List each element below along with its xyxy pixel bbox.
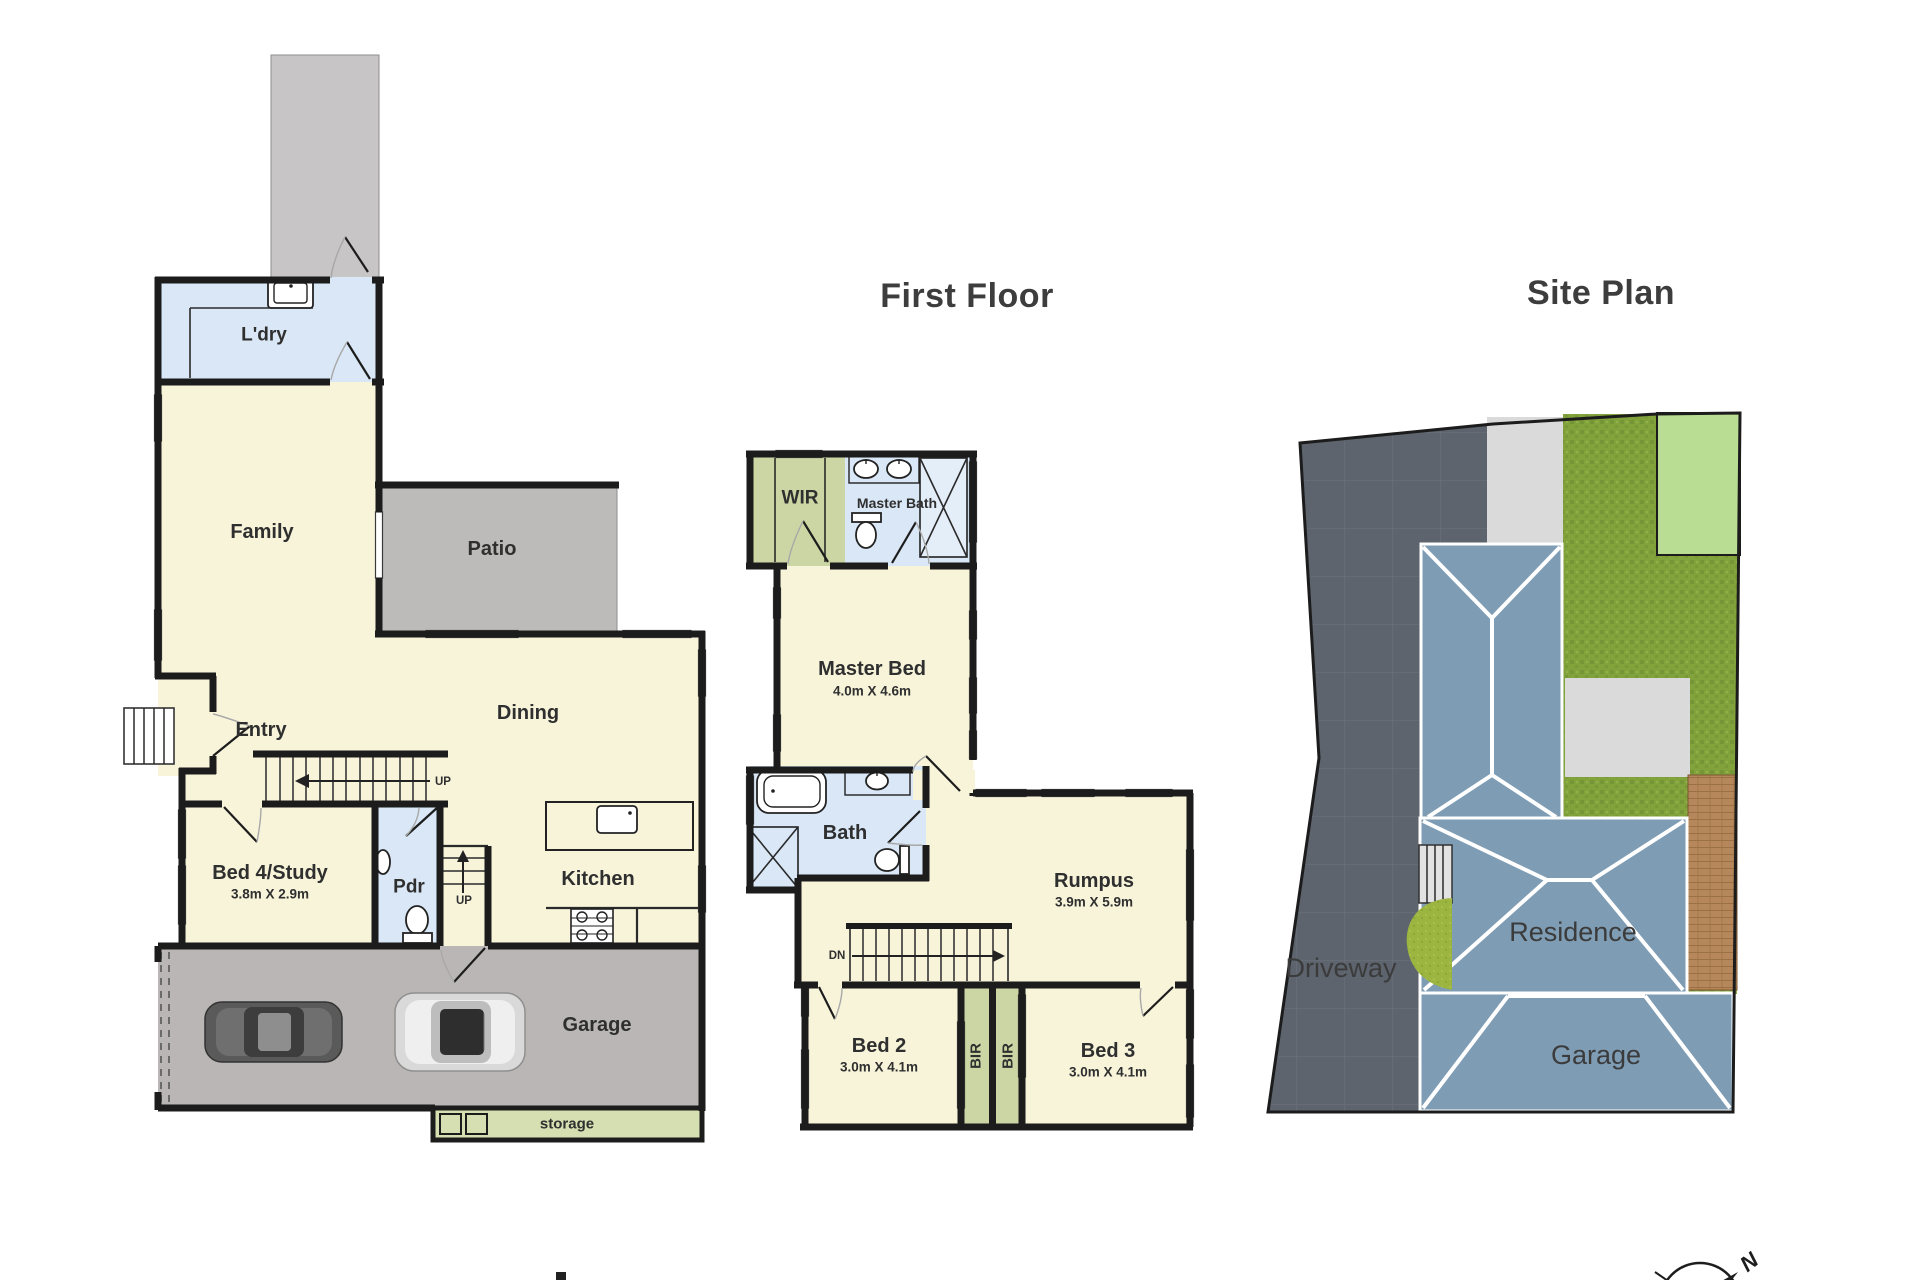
compass-circle (1660, 1263, 1740, 1280)
ground-floor-title-fragment (556, 1272, 566, 1280)
label-ldry: L'dry (241, 325, 287, 346)
site-entry-stairs (1419, 845, 1452, 903)
label-bed3: Bed 3 (1081, 1040, 1135, 1062)
compass-tail (1655, 1272, 1700, 1280)
label-wir: WIR (782, 488, 819, 509)
label-bed2-dims: 3.0m X 4.1m (840, 1060, 918, 1075)
label-garage: Garage (563, 1014, 632, 1036)
porch-path (271, 55, 379, 279)
label-driveway: Driveway (1285, 953, 1397, 983)
first-floor-plan: DN (746, 451, 1194, 1128)
car-silver (395, 993, 525, 1071)
site-plan-title: Site Plan (1527, 274, 1675, 312)
label-patio: Patio (468, 538, 517, 560)
label-bath: Bath (823, 822, 867, 844)
label-bir-right: BIR (1000, 1043, 1017, 1069)
landing-floor (798, 878, 926, 985)
label-master-bed: Master Bed (818, 658, 926, 680)
bathtub (757, 770, 826, 813)
floorplan-image: UP UP (0, 0, 1920, 1280)
label-family: Family (230, 521, 294, 543)
site-plan: Driveway Residence Garage (1268, 413, 1740, 1112)
label-rumpus-dims: 3.9m X 5.9m (1055, 895, 1133, 910)
label-site-garage: Garage (1551, 1040, 1641, 1070)
label-entry: Entry (235, 719, 287, 741)
stairs-dn-label: DN (829, 950, 846, 962)
entry-steps (124, 708, 174, 764)
floorplan-sheet: UP UP (0, 0, 1920, 1280)
deck-area (1688, 775, 1737, 990)
label-pdr: Pdr (393, 877, 425, 898)
label-rumpus: Rumpus (1054, 870, 1134, 892)
wir-floor (750, 454, 845, 566)
stairs-up2-label: UP (456, 895, 472, 907)
label-kitchen: Kitchen (561, 868, 634, 890)
label-master-bed-dims: 4.0m X 4.6m (833, 684, 911, 699)
lawn-light-area (1657, 413, 1740, 555)
master-bed-floor (777, 566, 973, 795)
kitchen-island (546, 802, 693, 850)
ground-floor-plan: UP UP (124, 55, 706, 1140)
compass: N (1655, 1247, 1764, 1280)
paved-patch (1565, 678, 1690, 777)
label-storage: storage (540, 1116, 594, 1133)
path-area (1487, 417, 1563, 560)
label-residence: Residence (1509, 917, 1637, 947)
label-master-bath: Master Bath (857, 495, 937, 511)
label-dining: Dining (497, 702, 559, 724)
label-bed4-dims: 3.8m X 2.9m (231, 887, 309, 902)
cooktop (571, 909, 613, 943)
first-floor-title: First Floor (880, 277, 1054, 315)
car-dark (205, 1002, 342, 1062)
label-bed2: Bed 2 (852, 1035, 906, 1057)
compass-needle-icon (1698, 1272, 1738, 1280)
label-bir-left: BIR (968, 1043, 985, 1069)
label-bed4: Bed 4/Study (212, 862, 328, 884)
stairs-up-label: UP (435, 776, 451, 788)
bath-toilet (875, 846, 909, 874)
label-bed3-dims: 3.0m X 4.1m (1069, 1065, 1147, 1080)
compass-north-label: N (1735, 1247, 1764, 1277)
